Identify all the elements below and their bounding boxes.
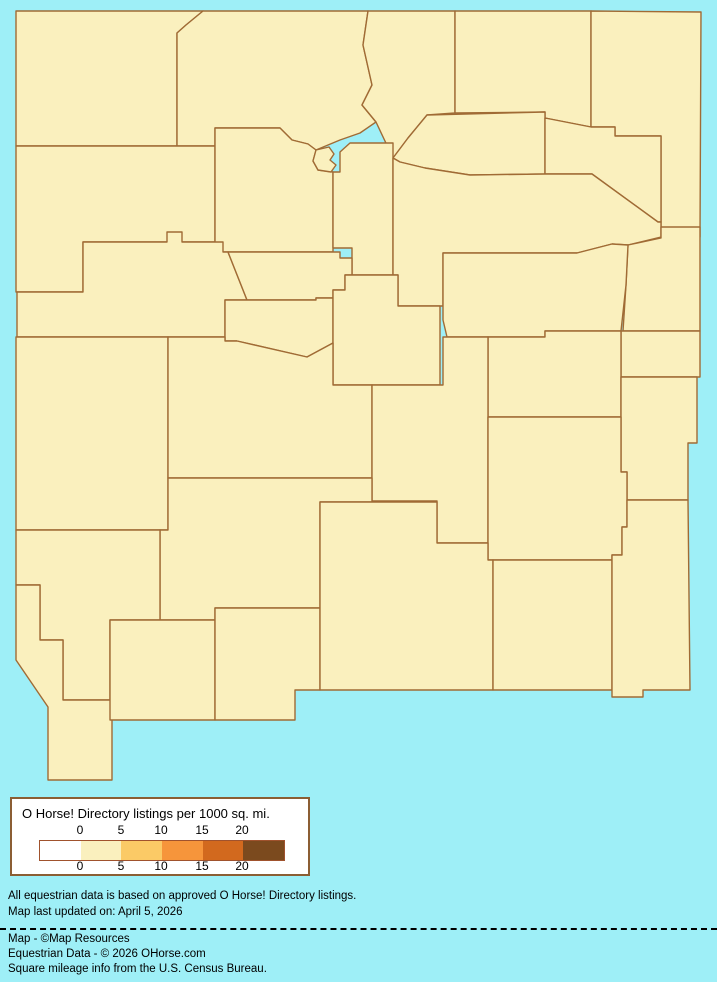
credit-equestrian-data: Equestrian Data - © 2026 OHorse.com	[8, 948, 206, 960]
tick-label: 5	[118, 859, 125, 873]
tick-label: 5	[118, 823, 125, 837]
county-guadalupe[interactable]	[443, 244, 628, 337]
legend-swatch-0-5	[81, 841, 122, 860]
legend-title: O Horse! Directory listings per 1000 sq.…	[22, 806, 270, 821]
county-de-baca[interactable]	[488, 331, 621, 417]
county-colfax[interactable]	[455, 11, 591, 127]
tick-label: 15	[195, 823, 208, 837]
legend-swatch-0	[40, 841, 81, 860]
county-santa-fe[interactable]	[333, 143, 393, 275]
new-mexico-county-map	[0, 0, 717, 790]
tick-label: 10	[154, 859, 167, 873]
legend-ticks-bottom: 0 5 10 15 20	[12, 859, 308, 873]
county-catron[interactable]	[16, 337, 168, 530]
tick-label: 20	[235, 859, 248, 873]
legend-ticks-top: 0 5 10 15 20	[12, 823, 308, 837]
tick-label: 20	[235, 823, 248, 837]
footnote-data-source: All equestrian data is based on approved…	[8, 890, 356, 902]
page: O Horse! Directory listings per 1000 sq.…	[0, 0, 717, 982]
tick-label: 10	[154, 823, 167, 837]
tick-label: 0	[77, 859, 84, 873]
county-san-juan[interactable]	[16, 11, 203, 146]
county-los-alamos[interactable]	[313, 147, 336, 172]
tick-label: 15	[195, 859, 208, 873]
credit-square-mileage: Square mileage info from the U.S. Census…	[8, 963, 267, 975]
county-roosevelt[interactable]	[621, 377, 697, 500]
credit-map: Map - ©Map Resources	[8, 933, 130, 945]
legend-swatch-5-10	[121, 841, 162, 860]
tick-label: 0	[77, 823, 84, 837]
legend-swatch-10-15	[162, 841, 203, 860]
legend-swatch-20-plus	[243, 841, 284, 860]
county-eddy[interactable]	[493, 560, 612, 690]
county-lea[interactable]	[612, 500, 690, 697]
legend: O Horse! Directory listings per 1000 sq.…	[10, 797, 310, 876]
footnote-last-updated: Map last updated on: April 5, 2026	[8, 906, 183, 918]
county-luna[interactable]	[110, 620, 215, 720]
county-curry[interactable]	[621, 331, 700, 377]
county-chaves[interactable]	[488, 417, 627, 560]
county-dona-ana[interactable]	[215, 608, 320, 720]
legend-color-ramp	[39, 840, 285, 861]
dashed-separator	[0, 928, 717, 930]
legend-swatch-15-20	[203, 841, 244, 860]
